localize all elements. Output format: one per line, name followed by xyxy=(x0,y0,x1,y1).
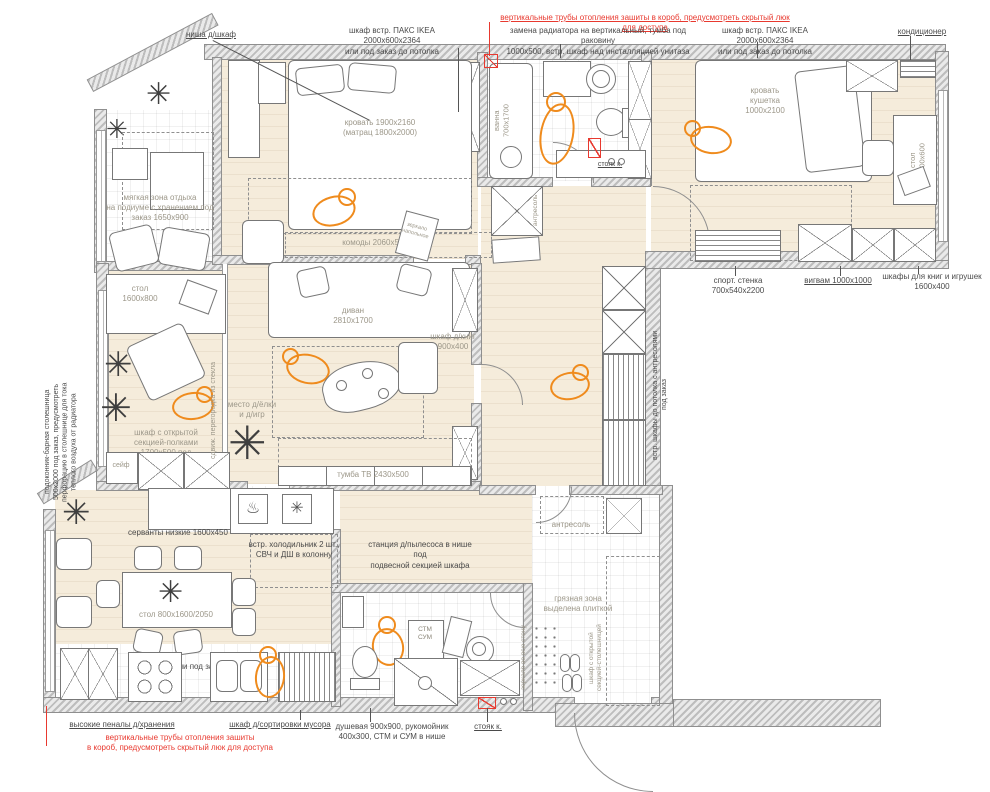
armchair xyxy=(242,220,284,264)
shower-drain xyxy=(418,676,432,690)
sink-bowl xyxy=(216,660,238,692)
shoe xyxy=(570,654,580,672)
hob-burners xyxy=(128,652,182,702)
porch-step xyxy=(674,700,880,726)
bathtub-label: ванна 700х1700 xyxy=(492,78,511,164)
hall-bench xyxy=(491,236,541,263)
wall-hall-entry-left xyxy=(480,486,535,494)
fridge-label: встр. холодильник 2 шт., СВЧ и ДШ в коло… xyxy=(246,540,342,561)
pillow xyxy=(347,62,397,94)
leader-line xyxy=(370,708,371,722)
ac-label: кондиционер xyxy=(890,27,954,37)
wall-hall-entry-right xyxy=(570,486,662,494)
tree-spot-label: место д/ёлки и д/игр xyxy=(224,400,280,420)
closet-xbox xyxy=(184,452,230,490)
study-desk-label: стол 1600х800 xyxy=(112,284,168,304)
entry-wardrobe xyxy=(606,556,660,706)
tv-label: тумба ТВ 2430х500 xyxy=(308,470,438,480)
wall-bath2-top xyxy=(332,584,532,592)
dining-chair xyxy=(96,580,120,608)
sport-wall xyxy=(695,230,781,262)
bookcase-xbox xyxy=(452,268,478,332)
cat-figure-head xyxy=(282,348,299,365)
bookcases-label: шкафы для книг и игрушек 1600х400 xyxy=(876,272,988,293)
closet-xbox xyxy=(606,498,642,534)
cat-figure-head xyxy=(259,646,277,664)
riser-top-label: стояк к. xyxy=(584,160,636,169)
side-table xyxy=(398,342,438,394)
pillow xyxy=(295,64,346,97)
plant-icon: ✳ xyxy=(62,496,91,530)
pax-left-label: шкаф встр. ПАКС IKEA 2000х600х2364 или п… xyxy=(322,26,462,57)
sofa-label: диван 2810х1700 xyxy=(308,306,398,326)
leader-line xyxy=(487,708,488,722)
closet-xbox xyxy=(628,61,652,121)
wigwam-label: вигвам 1000х1000 xyxy=(790,276,886,286)
leader-line xyxy=(458,48,459,112)
leader-line xyxy=(918,266,919,274)
table-leg xyxy=(362,368,373,379)
bookcase-xbox xyxy=(852,228,894,262)
cat-figure-head xyxy=(338,188,356,206)
window-seat xyxy=(56,596,92,628)
builtin-closet-xbox xyxy=(602,310,646,354)
dining-chair xyxy=(134,546,162,570)
wall-balcony-bedroom xyxy=(213,58,221,264)
leader-line xyxy=(910,36,911,60)
plant-icon: ✳ xyxy=(146,80,171,110)
dining-chair xyxy=(232,578,256,606)
hall-bottom-floor xyxy=(340,486,532,592)
safe-label: сейф xyxy=(106,462,136,471)
counter-dot xyxy=(500,698,507,705)
daybed-label: кровать кушетка 1000х2100 xyxy=(725,86,805,116)
leader-line xyxy=(840,266,841,276)
trash-cabinet xyxy=(278,652,336,702)
closet-xbox xyxy=(846,60,898,92)
bookcase-xbox xyxy=(894,228,936,262)
riser-mark xyxy=(588,138,601,158)
niche-label: ниша д/шкаф xyxy=(156,30,266,40)
sport-label: спорт. стенка 700х540х2200 xyxy=(686,276,790,297)
oven-icon: ♨ xyxy=(238,494,268,524)
window-kitchen xyxy=(45,530,55,692)
glass-partition-label: сдвиж. перегородка из стекла xyxy=(210,345,219,475)
table-leg xyxy=(336,380,347,391)
leader-line xyxy=(300,710,301,720)
mirror-wall-label: зеркало во всю стену xyxy=(520,616,528,700)
balcony-table xyxy=(112,148,148,180)
mezzanine-hall-label: антресоль xyxy=(542,520,600,530)
shower-label: душевая 900х900, рукомойник 400х300, СТМ… xyxy=(330,722,454,743)
sink xyxy=(342,596,364,628)
soft-zone-label: мягкая зона отдыха на подиуме с хранение… xyxy=(100,193,220,223)
ac-unit xyxy=(900,60,936,78)
builtin-wardrobes-label: встр. шкафы до потолка с антресолями под… xyxy=(652,306,672,484)
dining-chair xyxy=(232,608,256,636)
bottom-red-note: вертикальные трубы отопления зашиты в ко… xyxy=(40,733,320,754)
washbasin-inner xyxy=(592,70,610,88)
riser-mark xyxy=(484,54,498,68)
floor-plan: ✳ ✳ мягкая зона отдыха на подиуме с хран… xyxy=(0,0,990,792)
builtin-closet-xbox xyxy=(602,266,646,310)
washbasin-inner xyxy=(472,642,486,656)
toilet-bowl xyxy=(352,646,378,678)
open-counter-label: шкаф с открытой секцией-столешницей xyxy=(588,608,606,708)
wall-right-bottom xyxy=(660,486,672,712)
entry-mat xyxy=(532,624,558,688)
cat-figure-head xyxy=(572,364,589,381)
shoe xyxy=(560,654,570,672)
builtin-shelves xyxy=(602,420,646,486)
mezzanine-top-label: антресоль xyxy=(532,188,540,232)
plant-icon: ✳ xyxy=(100,390,132,428)
tall-pantry-xbox xyxy=(60,648,90,700)
dining-table-label: стол 800х1600/2050 xyxy=(128,610,224,620)
wigwam xyxy=(798,224,852,262)
counter-dot xyxy=(510,698,517,705)
closet-xbox xyxy=(138,452,184,490)
sink xyxy=(543,61,591,97)
sideboards-label: серванты низкие 1600х450 xyxy=(118,528,238,538)
vacuum-label: станция д/пылесоса в нише под подвесной … xyxy=(368,540,472,571)
wall-bath-bottom-right xyxy=(592,178,650,186)
tv-zone xyxy=(278,438,472,468)
person-figure-head xyxy=(378,616,396,634)
trash-label: шкаф д/сортировки мусора xyxy=(224,720,336,730)
bed-label: кровать 1900х2160 (матрац 1800х2000) xyxy=(318,118,442,138)
window-kidsroom xyxy=(938,90,948,242)
leader-line xyxy=(735,266,736,276)
plant-icon: ✳ xyxy=(158,578,183,608)
pax-right-label: шкаф встр. ПАКС IKEA 2000х600х2364 или п… xyxy=(700,26,830,57)
leader-line xyxy=(757,42,758,58)
plant-icon: ✳ xyxy=(104,348,133,382)
wardrobe xyxy=(228,60,260,158)
leader-line xyxy=(560,44,561,58)
window-seat xyxy=(56,538,92,570)
toilet-tank xyxy=(350,678,380,690)
riser-bottom-label: стояк к. xyxy=(462,722,514,732)
shoe xyxy=(572,674,582,692)
table-leg xyxy=(378,388,389,399)
cat-figure-head xyxy=(684,120,701,137)
shoe xyxy=(562,674,572,692)
leader-line-red xyxy=(46,706,47,746)
radiator-label: замена радиатора на вертикальный, тумба … xyxy=(498,26,698,57)
builtin-shelves xyxy=(602,354,646,420)
nightstand xyxy=(258,62,286,104)
floor-pillow xyxy=(157,226,211,272)
plant-icon: ✳ xyxy=(228,420,267,466)
person-figure-head xyxy=(546,92,566,112)
desk-chair xyxy=(862,140,894,176)
tall-pantry-xbox xyxy=(88,648,118,700)
hob-icon: ✳ xyxy=(282,494,312,524)
wall-bath-bottom-left xyxy=(478,178,552,186)
dining-chair xyxy=(174,546,202,570)
closet-xbox xyxy=(460,660,520,696)
washer-dryer-label: СТМ СУМ xyxy=(408,626,442,642)
tall-cabinets-label: высокие пеналы д/хранения xyxy=(52,720,192,730)
leader-line-red xyxy=(489,22,490,56)
